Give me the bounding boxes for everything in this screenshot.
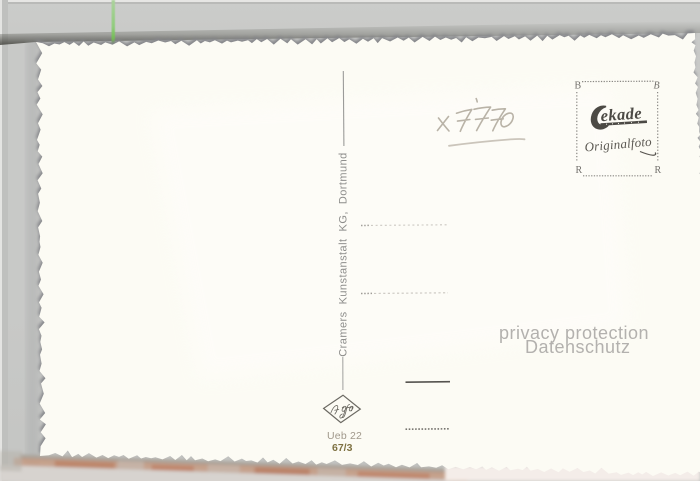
svg-text:R: R xyxy=(576,165,583,176)
svg-text:R: R xyxy=(655,165,662,176)
svg-text:B: B xyxy=(575,81,582,92)
svg-text:B: B xyxy=(654,81,660,92)
